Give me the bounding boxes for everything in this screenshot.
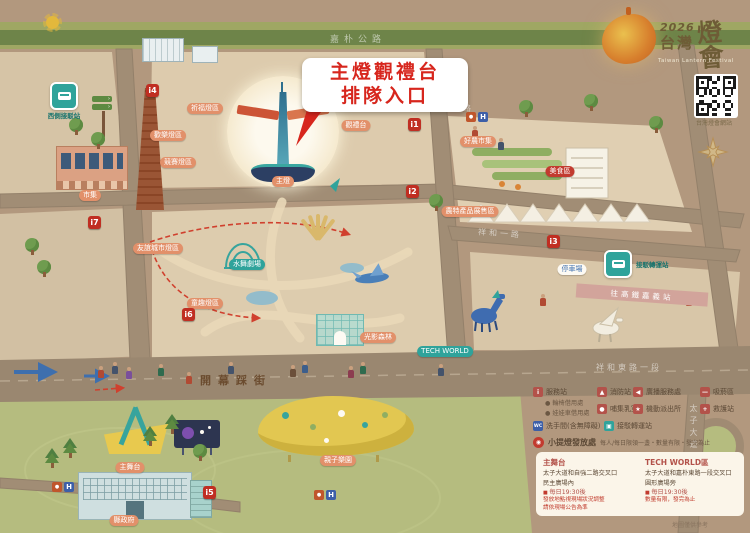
person-figure: [126, 367, 132, 379]
person-figure: [438, 364, 444, 376]
info-time: 每日19:30後: [645, 488, 737, 498]
zone-pill: 友誼城市燈區: [133, 243, 183, 254]
info-marker-i4: i4: [146, 84, 159, 97]
qr-module: [733, 113, 736, 116]
person-figure: [290, 365, 296, 377]
info-line: 太子大道和嘉朴東路一段交叉口: [645, 469, 737, 478]
legend-icon: ★: [633, 404, 643, 414]
tree-icon: [648, 116, 664, 133]
hydrant-h-icon: H: [326, 490, 336, 500]
legend-label: 廣播服務處: [646, 387, 681, 397]
zone-pill: 競賽燈區: [160, 157, 196, 168]
legend-item: —吸菸區: [700, 387, 734, 397]
legend-item: ▣接駁轉運站: [604, 421, 652, 431]
callout-line1: 主燈觀禮台: [330, 61, 440, 85]
zone-pill: 光影森林: [360, 332, 396, 343]
logo-year: 2026: [660, 22, 695, 33]
legend-item: ▲消防站: [597, 387, 631, 397]
qr-code: [694, 74, 738, 118]
legend-label: 接駁轉運站: [617, 421, 652, 431]
legend-icon: WC: [533, 421, 543, 431]
legend-item: WC洗手間(含無障礙): [533, 421, 600, 431]
zone-pill: 美食區: [546, 166, 575, 177]
legend-label: 機動派出所: [646, 404, 681, 414]
market-building: [56, 146, 128, 190]
zone-pill: 市集: [79, 190, 101, 201]
info-line: 民主廣場內: [543, 479, 635, 488]
info-note: 發放地點視現場狀況調整: [543, 497, 635, 505]
person-figure: [348, 366, 354, 378]
callout-line2: 排隊入口: [341, 85, 429, 109]
info-note: 請依現場公告為準: [543, 505, 635, 513]
person-figure: [360, 362, 366, 374]
legend-label: 消防站: [610, 387, 631, 397]
tree-icon: [24, 238, 40, 255]
legend-item: ◀廣播服務處: [633, 387, 681, 397]
legend-item: ●哺集乳室: [597, 404, 638, 414]
legend-label: 洗手間(含無障礙): [546, 421, 600, 431]
person-figure: [98, 366, 104, 378]
tree-icon: [68, 118, 84, 135]
tree-icon: [192, 444, 208, 461]
main-lantern-callout: 主燈觀禮台 排隊入口: [302, 58, 468, 112]
sun-icon: [46, 16, 59, 29]
legend-icon: +: [700, 404, 710, 414]
info-marker-i7: i7: [88, 216, 101, 229]
zone-pill: 停車場: [558, 264, 587, 275]
person-figure: [112, 362, 118, 374]
restroom-mini-icon: ●: [466, 112, 476, 122]
festival-map: ›› 西側接駁站 接駁轉運站 往高鐵嘉義站: [0, 0, 750, 533]
zone-pill: 主舞台: [116, 462, 145, 473]
legend-item: ★機動派出所: [633, 404, 681, 414]
zone-pill: 親子樂園: [320, 455, 356, 466]
info-line: 太子大道和自強二路交叉口: [543, 469, 635, 478]
east-shuttle-station: 接駁轉運站: [604, 250, 669, 278]
info-marker-i3: i3: [547, 235, 560, 248]
tree-icon: [583, 94, 599, 111]
person-figure: [302, 361, 308, 373]
qr-caption: 台灣燈會網站: [686, 118, 742, 127]
info-title: TECH WORLD區: [645, 457, 737, 468]
legend-item: i服務站: [533, 387, 567, 397]
restroom-mini-icon: ●: [314, 490, 324, 500]
zone-pill: TECH WORLD: [417, 346, 473, 357]
person-figure: [158, 364, 164, 376]
logo-text: 2026 台灣: [660, 22, 695, 51]
legend-icon: ▣: [604, 421, 614, 431]
road-label-top: 嘉朴公路: [330, 32, 386, 45]
shuttle-bus-icon: [50, 82, 78, 110]
pine-tree-icon: [142, 426, 158, 446]
zone-pill: 縣政府: [110, 515, 139, 526]
county-hall-building: [78, 472, 192, 520]
tree-icon: [36, 260, 52, 277]
info-note: 數量有限，發完為止: [645, 497, 737, 505]
direction-signpost-icon: ››: [92, 96, 114, 137]
logo-title-en: Taiwan Lantern Festival: [658, 58, 734, 64]
zone-pill: 農特產品展售區: [442, 206, 499, 217]
legend-label: 吸菸區: [713, 387, 734, 397]
tree-icon: [518, 100, 534, 117]
zone-pill: 祈福燈區: [187, 103, 223, 114]
road-label-parade: 開幕踩街: [200, 372, 272, 388]
person-figure: [540, 294, 546, 306]
pine-tree-icon: [62, 438, 78, 458]
distribution-info-box: 主舞台 太子大道和自強二路交叉口 民主廣場內 每日19:30後 發放地點視現場狀…: [536, 452, 744, 516]
mini-lantern-row: ◉ 小提燈發放處 每人/每日限領一盞・數量有限・發完為止: [533, 437, 710, 448]
mini-lantern-note: 每人/每日限領一盞・數量有限・發完為止: [600, 438, 710, 447]
info-title: 主舞台: [543, 457, 635, 468]
pine-tree-icon: [44, 448, 60, 468]
zone-pill: 水舞劇場: [229, 259, 265, 270]
greenhouse-building: [142, 38, 184, 62]
canopy-pavilion: [258, 396, 414, 456]
zone-pill: 觀禮台: [342, 120, 371, 131]
person-figure: [498, 138, 504, 150]
east-shuttle-label: 接駁轉運站: [636, 259, 669, 269]
lantern-beam-left: [237, 105, 280, 120]
west-shuttle-label: 西側接駁站: [40, 110, 88, 120]
legend-label: 服務站: [546, 387, 567, 397]
zone-pill: 歡樂燈區: [150, 130, 186, 141]
road-label-east: 祥和東路一段: [596, 362, 662, 373]
legend-label: 救護站: [713, 404, 734, 414]
legend-icon: —: [700, 387, 710, 397]
legend-icon: ●: [597, 404, 607, 414]
mini-lantern-label: 小提燈發放處: [548, 437, 596, 448]
info-marker-i2: i2: [406, 185, 419, 198]
hydrant-h-icon: H: [64, 482, 74, 492]
legend-sub-items: ● 輪椅借用處● 娃娃車借用處: [545, 399, 590, 419]
facility-badge-pair: ●H: [314, 490, 336, 500]
tree-icon: [90, 132, 106, 149]
info-col-tech-world: TECH WORLD區 太子大道和嘉朴東路一段交叉口 圓形廣場旁 每日19:30…: [645, 457, 737, 511]
hydrant-h-icon: H: [478, 112, 488, 122]
info-line: 圓形廣場旁: [645, 479, 737, 488]
west-shuttle-station: 西側接駁站: [40, 82, 88, 120]
small-shed: [192, 46, 218, 63]
info-col-main-stage: 主舞台 太子大道和自強二路交叉口 民主廣場內 每日19:30後 發放地點視現場狀…: [543, 457, 635, 511]
restroom-mini-icon: ●: [52, 482, 62, 492]
info-marker-i5: i5: [203, 486, 216, 499]
legend-icon: ▲: [597, 387, 607, 397]
facility-badge-pair: ●H: [52, 482, 74, 492]
shuttle-bus-icon: [604, 250, 632, 278]
legend-item: +救護站: [700, 404, 734, 414]
legend-icon: ◀: [633, 387, 643, 397]
info-marker-i1: i1: [408, 118, 421, 131]
info-marker-i6: i6: [182, 308, 195, 321]
pine-tree-icon: [164, 414, 180, 434]
person-figure: [186, 372, 192, 384]
map-footnote: 地圖僅供參考: [672, 520, 708, 529]
logo-title-zh: 台灣: [660, 36, 695, 51]
zone-pill: 主燈: [272, 176, 294, 187]
info-time: 每日19:30後: [543, 488, 635, 498]
facility-badge-pair: ●H: [466, 112, 488, 122]
legend-icon: i: [533, 387, 543, 397]
zone-pill: 好農市集: [460, 136, 496, 147]
glass-pavilion: [316, 314, 364, 346]
mini-lantern-icon: ◉: [533, 437, 544, 448]
